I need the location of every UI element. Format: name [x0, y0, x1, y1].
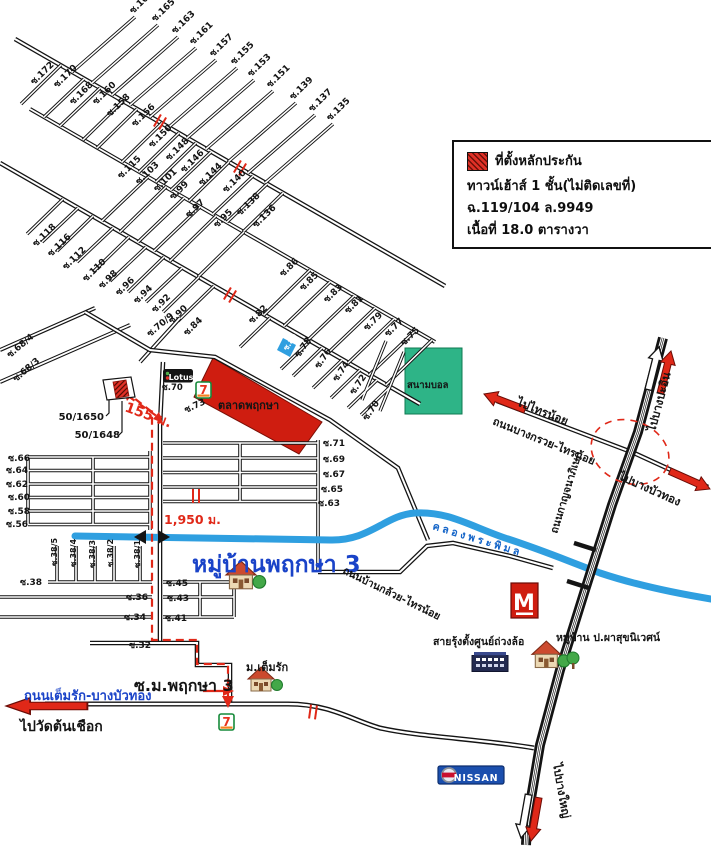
wheel-shop-building-icon — [472, 652, 508, 672]
soi-label: ซ.56 — [6, 520, 28, 530]
soi-label: ซ.38/5 — [50, 537, 59, 566]
soi-label: ซ.36 — [126, 593, 148, 603]
soi-label: ซ.151 — [265, 63, 292, 90]
tree-icon — [567, 652, 579, 669]
soi-label: ซ.66 — [8, 454, 30, 464]
market-label: ตลาดพฤกษา — [218, 399, 279, 412]
soi-label: ซ.69 — [323, 455, 345, 465]
soi-label: ซ.155 — [229, 40, 256, 67]
soi-label: ซ.84 — [182, 316, 205, 339]
soi-label: ซ.38/2 — [106, 539, 115, 567]
soi-label: ซ.161 — [188, 20, 215, 47]
soi-label: ซ.144 — [197, 161, 224, 188]
soi-label: ซ.68/3 — [12, 356, 43, 384]
to-bangyai-label: ไปบางใหญ่ — [550, 760, 574, 819]
lotus-text: Lotus — [169, 373, 194, 382]
soi-label: ซ.71 — [323, 439, 345, 449]
kanchanaphisek-label: ถนนกาญจนาภิเษก — [548, 450, 584, 535]
direction-arrows — [6, 345, 711, 842]
football-field-label: สนามบอล — [407, 380, 449, 391]
canal-crossing-arrow-right — [158, 530, 170, 544]
soi-label: ซ.76 — [313, 347, 334, 371]
village-block-left — [28, 451, 150, 530]
seven-eleven-7: 7 — [199, 383, 207, 397]
soi-label: ซ.43 — [167, 594, 189, 604]
soi-label: ซ.81 — [343, 294, 366, 317]
soi-label: ซ.63 — [318, 499, 340, 509]
soi-label: ซ.64 — [6, 466, 28, 476]
road-core — [27, 199, 270, 347]
soi-label: ซ.38/4 — [69, 538, 78, 567]
soi-label: ซ.153 — [246, 52, 273, 79]
soi-label: ซ.60 — [8, 493, 30, 503]
legend-house-type: ทาวน์เฮ้าส์ 1 ชั้น(ไม่ติดเลขที่) — [467, 180, 636, 193]
legend-deed-no: ฉ.119/104 ล.9949 — [467, 202, 593, 215]
temrak-road — [45, 704, 534, 748]
m-logo-letter: M — [513, 591, 535, 616]
soi-label: ซ.58 — [8, 507, 30, 517]
soi-label: ซ.70 — [361, 399, 382, 423]
map-canvas: ซ.167ซ.165ซ.163ซ.161ซ.157ซ.155ซ.153ซ.151… — [0, 0, 711, 850]
soi-label: ซ.135 — [325, 96, 352, 123]
mu-temrak-label: ม.เต็มรัก — [246, 660, 288, 674]
collateral-hatch-swatch — [467, 152, 488, 171]
soi-label: ซ.157 — [208, 32, 235, 59]
soi-label: ซ.77 — [383, 317, 406, 340]
soi-label: ซ.41 — [165, 614, 187, 624]
soi-label: ซ.75 — [399, 326, 422, 349]
soi-label: ซ.86 — [278, 257, 301, 280]
map-page: ซ.167ซ.165ซ.163ซ.161ซ.157ซ.155ซ.153ซ.151… — [0, 0, 711, 850]
soi-label: ซ.34 — [124, 613, 146, 623]
seven-eleven-7: 7 — [222, 715, 230, 729]
road-core — [30, 109, 435, 342]
soi-label: ซ.136 — [251, 203, 278, 230]
labels-layer: ซ.167ซ.165ซ.163ซ.161ซ.157ซ.155ซ.153ซ.151… — [6, 0, 684, 819]
soi-label: ซ.139 — [288, 75, 315, 102]
village-pruksa3-label: หมู่บ้านพฤกษา 3 — [192, 552, 361, 579]
house-no-50-1650: 50/1650 — [59, 412, 104, 423]
soi-label: ซ.32 — [129, 641, 151, 651]
soi-label: ซ.138 — [235, 191, 262, 218]
legend-area-size: เนื้อที่ 18.0 ตารางวา — [467, 224, 589, 237]
soi-label: ซ.62 — [6, 480, 28, 490]
pasuk-village-label: หมู่บ้าน ป.ผาสุขนิเวศน์ — [556, 631, 661, 645]
soi-label: ซ.38 — [20, 578, 42, 588]
soi-label: ซ.73 — [183, 397, 207, 415]
legend-box: ที่ตั้งหลักประกัน ทาวน์เฮ้าส์ 1 ชั้น(ไม่… — [452, 140, 711, 249]
house-no-50-1648: 50/1648 — [75, 430, 120, 441]
soi-label: ซ.38/3 — [88, 540, 97, 568]
soi-label: ซ.167 — [128, 0, 155, 16]
soi-label: ซ.165 — [150, 0, 177, 24]
soi-label: ซ.38/1 — [133, 539, 142, 568]
to-wat-tonchueak-label: ไปวัดต้นเชือก — [18, 717, 103, 735]
nissan-text: NISSAN — [454, 773, 499, 784]
distance-1950m: 1,950 ม. — [164, 512, 221, 527]
soi-label: ซ.65 — [321, 485, 343, 495]
legend-title: ที่ตั้งหลักประกัน — [495, 155, 582, 168]
soi-label: ซ.45 — [166, 579, 188, 589]
sairung-wheel-shop-label: สายรุ้งตั้งศูนย์ถ่วงล้อ — [433, 633, 524, 649]
road-core — [28, 451, 150, 530]
soi-label: ซ.112 — [61, 245, 88, 272]
distance-155m: 155 ม. — [123, 400, 174, 432]
soi-label: ซ.70 — [162, 383, 183, 393]
soi-label: ซ.163 — [170, 9, 197, 36]
soi-label: ซ.67 — [323, 470, 345, 480]
temrak-road-label: ถนนเต็มรัก-บางบัวทอง — [24, 686, 152, 704]
